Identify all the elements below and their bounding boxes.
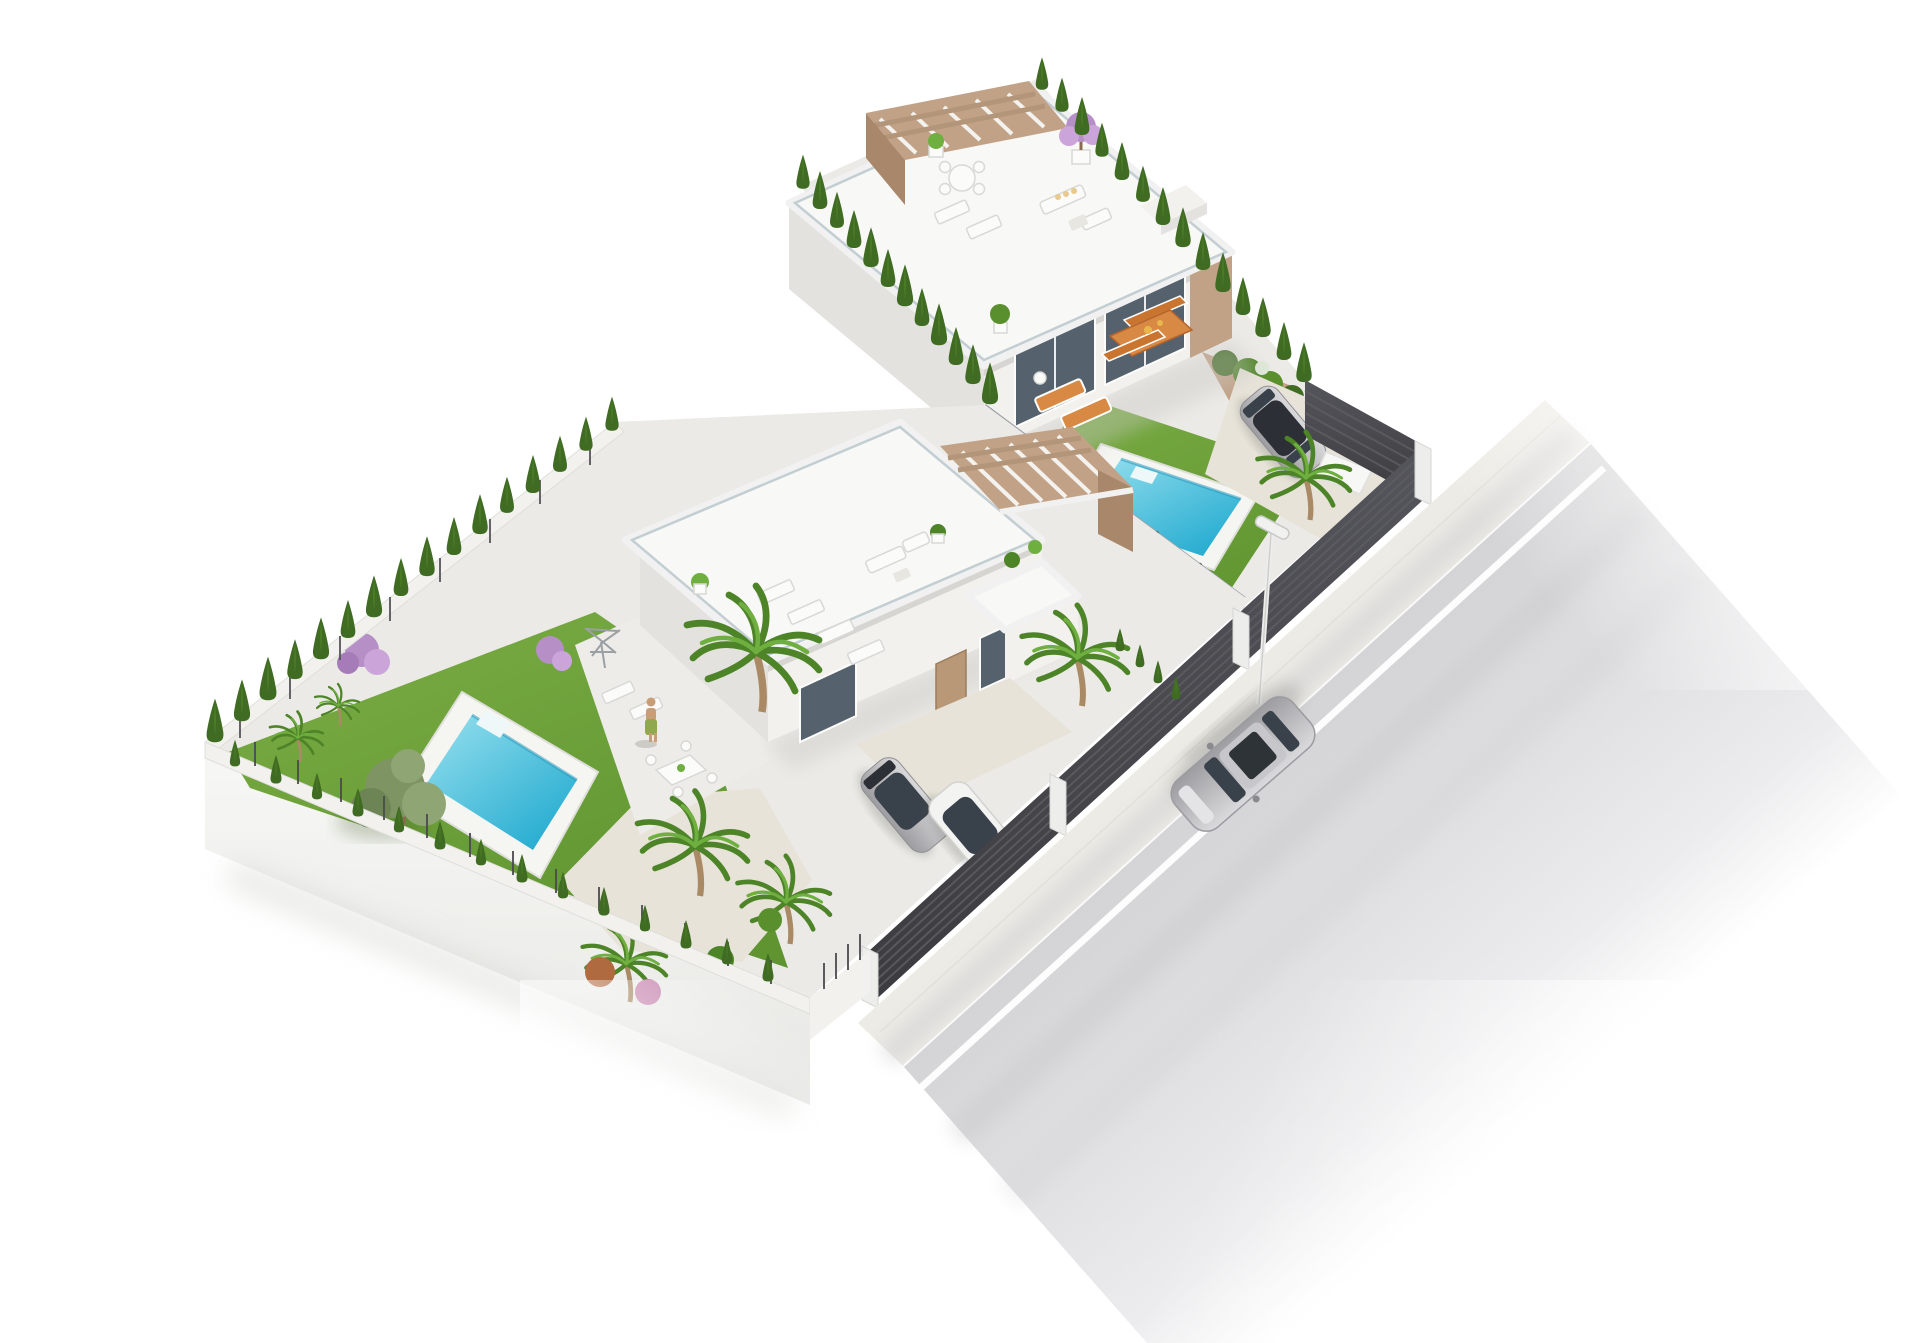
site-render (0, 0, 1920, 1343)
site-render-canvas (0, 0, 1920, 1343)
courtyard-plant (1028, 540, 1042, 554)
courtyard-plant (1004, 552, 1020, 568)
roof-plant-pot (928, 133, 944, 157)
